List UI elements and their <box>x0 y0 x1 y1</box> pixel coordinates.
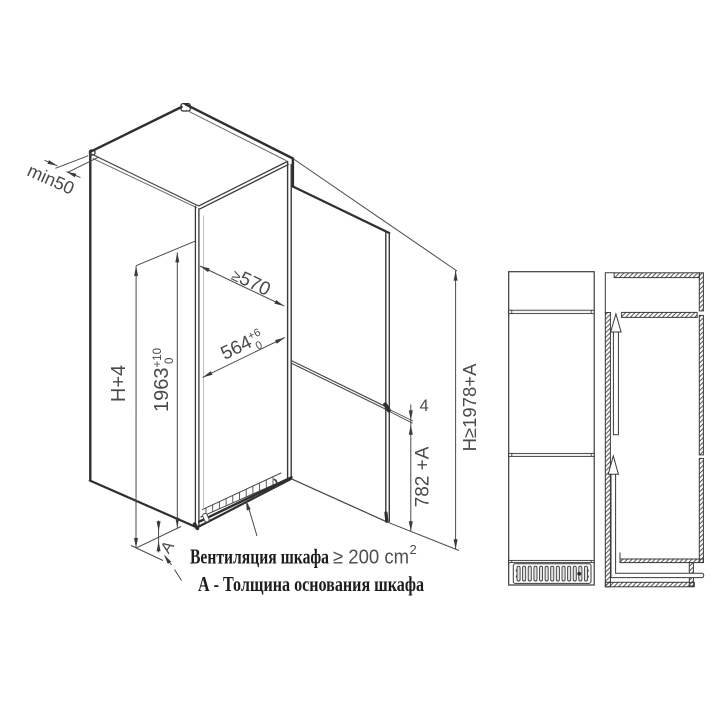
svg-text:А - Толщина основания шкафа: А - Толщина основания шкафа <box>198 572 424 596</box>
svg-text:2: 2 <box>410 542 417 557</box>
svg-text:≥ 200 cm: ≥ 200 cm <box>333 547 409 569</box>
svg-text:Вентиляция шкафа: Вентиляция шкафа <box>190 545 329 569</box>
svg-text:1963+100: 1963+100 <box>151 348 176 412</box>
svg-text:782 +A: 782 +A <box>413 446 434 507</box>
svg-text:4: 4 <box>420 397 429 415</box>
svg-text:H+4: H+4 <box>108 365 130 402</box>
svg-text:H≥1978+A: H≥1978+A <box>459 363 480 451</box>
